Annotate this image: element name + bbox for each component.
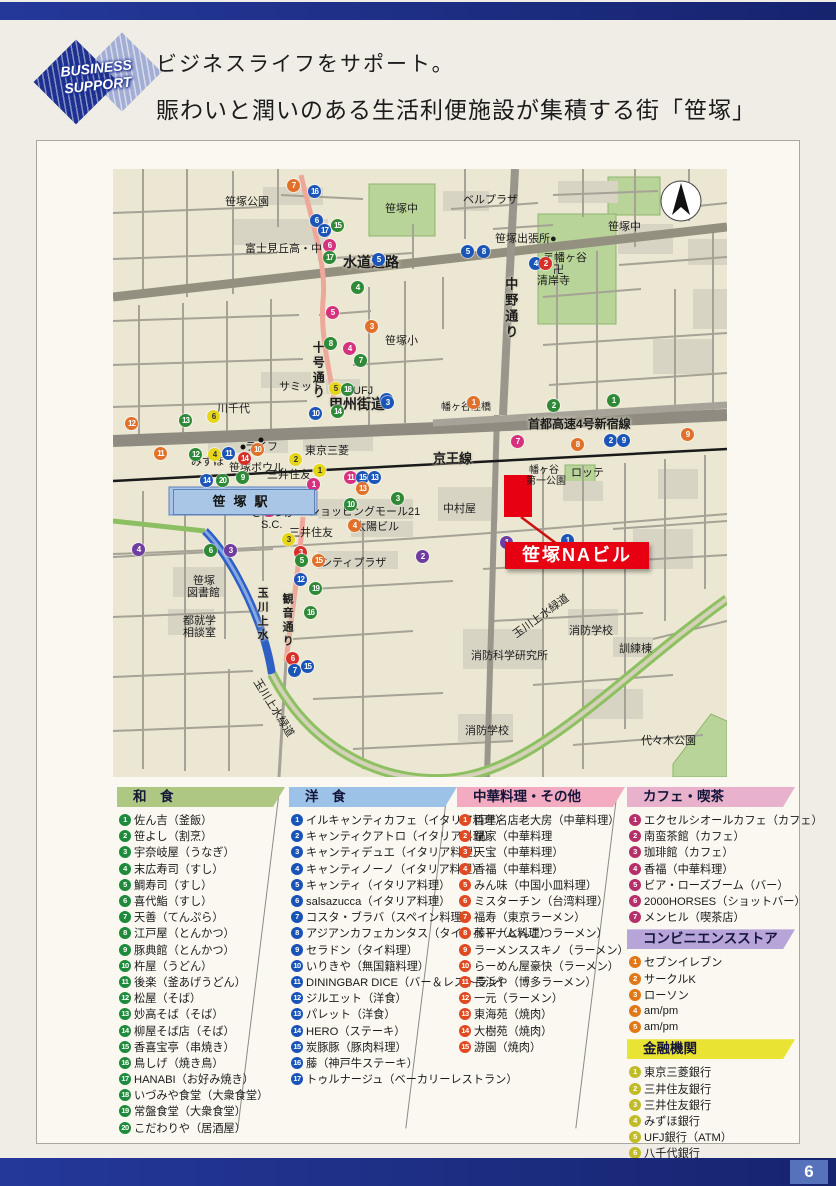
map-marker: 8	[571, 438, 584, 451]
legend-item: 17HANABI（お好み焼き）	[117, 1071, 285, 1087]
map-marker: 20	[216, 474, 229, 487]
item-number-bullet: 14	[119, 1025, 131, 1037]
map-marker: 1	[607, 394, 620, 407]
item-label: UFJ銀行（ATM）	[644, 1129, 732, 1145]
map-marker: 8	[324, 337, 337, 350]
item-number-bullet: 9	[119, 944, 131, 956]
item-label: ローソン	[644, 987, 689, 1003]
map-marker: 12	[189, 448, 202, 461]
legend-item: 1東京三菱銀行	[627, 1064, 795, 1080]
item-label: 三井住友銀行	[644, 1097, 711, 1113]
item-label: 香福（中華料理）	[644, 861, 734, 877]
item-number-bullet: 17	[291, 1073, 303, 1085]
legend-item: 4キャンティノーノ（イタリア料理）	[289, 861, 457, 877]
map-marker: 4	[343, 342, 356, 355]
map-marker: 7	[511, 435, 524, 448]
item-label: 藤平（とんこつラーメン）	[474, 925, 608, 941]
map-label: 図書館	[187, 587, 220, 599]
map-marker: 9	[681, 428, 694, 441]
item-label: セブンイレブン	[644, 954, 722, 970]
item-label: みん味（中国小皿料理）	[474, 877, 597, 893]
legend-section-title: 和 食	[117, 787, 285, 807]
item-number-bullet: 6	[459, 895, 471, 907]
station-label: 笹塚駅	[173, 489, 315, 515]
legend-item: 3ローソン	[627, 987, 795, 1003]
map-label: 笹塚中	[385, 203, 418, 215]
map-marker: 6	[207, 410, 220, 423]
item-number-bullet: 19	[119, 1105, 131, 1117]
item-label: 常盤食堂（大衆食堂）	[134, 1103, 246, 1119]
legend-item: 13東海苑（焼肉）	[457, 1006, 625, 1022]
item-label: 珈琲館（カフェ）	[644, 844, 734, 860]
item-number-bullet: 8	[459, 927, 471, 939]
item-label: 鯛寿司（すし）	[134, 877, 212, 893]
map-label: 訓練棟	[619, 643, 652, 655]
item-number-bullet: 1	[629, 1066, 641, 1078]
item-number-bullet: 3	[629, 1099, 641, 1111]
legend-item: 5鯛寿司（すし）	[117, 877, 285, 893]
item-label: 妙高そば（そば）	[134, 1006, 224, 1022]
legend-section-title: 金融機関	[627, 1039, 795, 1059]
facility-legend: 和 食1佐ん吉（釜飯）2笹よし（割烹）3宇奈岐屋（うなぎ）4末広寿司（すし）5鯛…	[117, 787, 797, 1139]
legend-section-header: 和 食	[117, 787, 285, 807]
map-label: 笹塚	[193, 575, 215, 587]
legend-item: 3天宝（中華料理）	[457, 844, 625, 860]
legend-item: 12ジルエット（洋食）	[289, 990, 457, 1006]
item-number-bullet: 2	[291, 830, 303, 842]
item-label: 末広寿司（すし）	[134, 861, 224, 877]
map-marker: 14	[238, 452, 251, 465]
map-marker: 2	[289, 453, 302, 466]
map-marker: 4	[348, 519, 361, 532]
map-marker: 4	[208, 448, 221, 461]
item-label: 游園（焼肉）	[474, 1039, 541, 1055]
map-marker: 7	[288, 664, 301, 677]
item-label: 藤（神戸牛ステーキ）	[306, 1055, 418, 1071]
map-marker: 9	[236, 471, 249, 484]
item-number-bullet: 2	[459, 830, 471, 842]
item-number-bullet: 4	[629, 1005, 641, 1017]
item-number-bullet: 20	[119, 1122, 131, 1134]
item-number-bullet: 11	[291, 976, 303, 988]
item-number-bullet: 2	[629, 830, 641, 842]
item-number-bullet: 7	[629, 911, 641, 923]
item-label: 長浜や（博多ラーメン）	[474, 974, 597, 990]
legend-item: 7天善（てんぷら）	[117, 909, 285, 925]
map-marker: 5	[326, 306, 339, 319]
legend-item: 14柳屋そば店（そば）	[117, 1022, 285, 1038]
map-marker: 9	[617, 434, 630, 447]
legend-item: 16鳥しげ（焼き鳥）	[117, 1055, 285, 1071]
item-label: コスタ・ブラバ（スペイン料理）	[306, 909, 473, 925]
map-marker: 16	[308, 185, 321, 198]
item-number-bullet: 11	[119, 976, 131, 988]
legend-item: 9セラドン（タイ料理）	[289, 942, 457, 958]
map-marker: 12	[294, 573, 307, 586]
item-label: 三井住友銀行	[644, 1081, 711, 1097]
item-label: 宇奈岐屋（うなぎ）	[134, 844, 235, 860]
map-marker: 16	[304, 606, 317, 619]
legend-item: 10いりきや（無国籍料理）	[289, 958, 457, 974]
page-headline: ビジネスライフをサポート。 賑わいと潤いのある生活利便施設が集積する街「笹塚」	[156, 48, 756, 125]
legend-item: 1百年名店老大房（中華料理）	[457, 812, 625, 828]
map-marker: 13	[179, 414, 192, 427]
legend-item: 1エクセルシオールカフェ（カフェ）	[627, 812, 795, 828]
map-marker: 17	[318, 224, 331, 237]
item-number-bullet: 5	[119, 879, 131, 891]
map-marker: 2	[547, 399, 560, 412]
map-label: 東京三菱	[305, 445, 349, 457]
legend-item: 4みずほ銀行	[627, 1113, 795, 1129]
item-number-bullet: 3	[629, 846, 641, 858]
item-label: トゥルナージュ（ベーカリーレストラン）	[306, 1071, 518, 1087]
item-number-bullet: 13	[291, 1008, 303, 1020]
item-number-bullet: 5	[629, 1021, 641, 1033]
item-label: いづみや食堂（大衆食堂）	[134, 1087, 268, 1103]
map-label: 幡ヶ谷	[529, 465, 559, 476]
map-label: 中野通り	[503, 277, 517, 341]
legend-item: 9ラーメンススキノ（ラーメン）	[457, 942, 625, 958]
legend-item: 4香福（中華料理）	[457, 861, 625, 877]
item-number-bullet: 2	[629, 1083, 641, 1095]
item-number-bullet: 10	[459, 960, 471, 972]
item-number-bullet: 17	[119, 1073, 131, 1085]
bottom-bar: 6	[0, 1158, 836, 1186]
legend-item: 5キャンティ（イタリア料理）	[289, 877, 457, 893]
item-number-bullet: 1	[629, 956, 641, 968]
map-marker: 3	[224, 544, 237, 557]
map-marker: 13	[368, 471, 381, 484]
page-number: 6	[790, 1160, 828, 1184]
legend-item: 5ビア・ローズブーム（バー）	[627, 877, 795, 893]
item-label: パレット（洋食）	[306, 1006, 396, 1022]
legend-item: 3三井住友銀行	[627, 1097, 795, 1113]
map-marker: 18	[341, 383, 354, 396]
legend-section-title: 洋 食	[289, 787, 457, 807]
legend-item: 8アジアンカフェカンタス（タイ、ベトナム料理）	[289, 925, 457, 941]
legend-item: 1イルキャンティカフェ（イタリア料理）	[289, 812, 457, 828]
item-number-bullet: 4	[119, 863, 131, 875]
item-number-bullet: 1	[629, 814, 641, 826]
legend-section-header: 中華料理・その他	[457, 787, 625, 807]
item-label: 炭豚豚（豚肉料理）	[306, 1039, 407, 1055]
map-label: 消防学校	[569, 625, 613, 637]
content-box: 笹塚公園笹塚中ベルプラザ笹塚中笹塚出張所●富士見丘高・中〒幡ヶ谷卍清岸寺水道道路…	[36, 140, 800, 1144]
top-bar	[0, 2, 836, 20]
map-marker: 1	[313, 464, 326, 477]
map-label: ロッテ	[571, 467, 604, 479]
item-number-bullet: 15	[459, 1041, 471, 1053]
legend-item: 6喜代鮨（すし）	[117, 893, 285, 909]
map-marker: 15	[301, 660, 314, 673]
item-number-bullet: 4	[629, 1115, 641, 1127]
legend-item: 6ミスターチン（台湾料理）	[457, 893, 625, 909]
item-label: 佐ん吉（釜飯）	[134, 812, 212, 828]
map-marker: 5	[372, 253, 385, 266]
legend-item: 11後楽（釜あげうどん）	[117, 974, 285, 990]
map-marker: 2	[416, 550, 429, 563]
item-label: メンヒル（喫茶店）	[644, 909, 745, 925]
map-label: 幡ヶ谷陸橋	[441, 402, 491, 413]
item-label: salsazucca（イタリア料理）	[306, 893, 450, 909]
item-label: 後楽（釜あげうどん）	[134, 974, 246, 990]
item-number-bullet: 9	[291, 944, 303, 956]
map-label: 相談室	[183, 627, 216, 639]
legend-section-title: カフェ・喫茶	[627, 787, 795, 807]
item-number-bullet: 6	[629, 895, 641, 907]
map-marker: 3	[391, 492, 404, 505]
legend-item: 2南蛮茶館（カフェ）	[627, 828, 795, 844]
item-number-bullet: 15	[119, 1041, 131, 1053]
item-number-bullet: 13	[459, 1008, 471, 1020]
legend-item: 3宇奈岐屋（うなぎ）	[117, 844, 285, 860]
map-label: 首都高速4号新宿線	[528, 418, 631, 431]
map-label: 笹塚小	[385, 335, 418, 347]
map-label: 消防学校	[465, 725, 509, 737]
item-label: 鳥しげ（焼き鳥）	[134, 1055, 224, 1071]
map-label: 笹塚公園	[225, 196, 269, 208]
item-number-bullet: 16	[119, 1057, 131, 1069]
item-label: 百年名店老大房（中華料理）	[474, 812, 619, 828]
map-marker: 3	[282, 533, 295, 546]
item-number-bullet: 5	[459, 879, 471, 891]
map-label: 清岸寺	[537, 275, 570, 287]
map-label: 代々木公園	[641, 735, 696, 747]
item-label: ビア・ローズブーム（バー）	[644, 877, 789, 893]
map-marker: 13	[356, 482, 369, 495]
map-marker: 3	[381, 396, 394, 409]
legend-item: 12松屋（そば）	[117, 990, 285, 1006]
map-marker: 12	[125, 417, 138, 430]
item-label: 天善（てんぷら）	[134, 909, 224, 925]
item-label: 柳屋そば店（そば）	[134, 1023, 235, 1039]
map-label: 三井住友	[267, 469, 311, 481]
item-label: エクセルシオールカフェ（カフェ）	[644, 812, 823, 828]
legend-item: 14大樹苑（焼肉）	[457, 1022, 625, 1038]
map-marker: 14	[331, 405, 344, 418]
item-label: こだわりや（居酒屋）	[134, 1120, 246, 1136]
map-marker: 8	[477, 245, 490, 258]
map-graphics	[113, 169, 727, 777]
legend-item: 2サークルK	[627, 971, 795, 987]
item-number-bullet: 3	[291, 846, 303, 858]
legend-item: 4香福（中華料理）	[627, 861, 795, 877]
legend-item: 3珈琲館（カフェ）	[627, 844, 795, 860]
headline-line1: ビジネスライフをサポート。	[156, 48, 756, 78]
map-label: シティプラザ	[321, 557, 386, 569]
map-marker: 15	[312, 554, 325, 567]
legend-item: 4am/pm	[627, 1003, 795, 1019]
map-marker: 5	[295, 554, 308, 567]
legend-item: 7メンヒル（喫茶店）	[627, 909, 795, 925]
item-number-bullet: 7	[291, 911, 303, 923]
item-number-bullet: 12	[119, 992, 131, 1004]
legend-item: 7福寿（東京ラーメン）	[457, 909, 625, 925]
item-number-bullet: 11	[459, 976, 471, 988]
item-label: セラドン（タイ料理）	[306, 942, 418, 958]
item-label: HERO（ステーキ）	[306, 1023, 405, 1039]
legend-item: 5UFJ銀行（ATM）	[627, 1129, 795, 1145]
map-marker: 6	[204, 544, 217, 557]
map-label: 笹塚出張所●	[495, 233, 557, 245]
item-number-bullet: 1	[459, 814, 471, 826]
legend-item: 8江戸屋（とんかつ）	[117, 925, 285, 941]
map-marker: 11	[154, 447, 167, 460]
item-number-bullet: 10	[291, 960, 303, 972]
map-label: 中村屋	[443, 503, 476, 515]
map-label: 第一公園	[526, 476, 566, 487]
item-label: 天宝（中華料理）	[474, 844, 564, 860]
map-label: ベルプラザ	[463, 194, 518, 206]
legend-section-header: 金融機関	[627, 1039, 795, 1059]
item-label: ジルエット（洋食）	[306, 990, 407, 1006]
map-label: S.C.	[261, 519, 282, 531]
legend-item: 10杵屋（うどん）	[117, 958, 285, 974]
item-label: みずほ銀行	[644, 1113, 700, 1129]
item-label: サークルK	[644, 971, 696, 987]
item-number-bullet: 7	[459, 911, 471, 923]
item-number-bullet: 1	[291, 814, 303, 826]
map-marker: 4	[132, 543, 145, 556]
na-building-label: 笹塚NAビル	[505, 542, 649, 569]
item-label: ミスターチン（台湾料理）	[474, 893, 608, 909]
item-number-bullet: 15	[291, 1041, 303, 1053]
item-number-bullet: 6	[291, 895, 303, 907]
map-label: 水道道路	[343, 255, 399, 270]
item-number-bullet: 5	[291, 879, 303, 891]
legend-item: 5am/pm	[627, 1019, 795, 1035]
legend-item: 13妙高そば（そば）	[117, 1006, 285, 1022]
map-marker: 6	[286, 652, 299, 665]
map-label: 太陽ビル	[355, 521, 399, 533]
item-label: 松屋（そば）	[134, 990, 201, 1006]
item-label: 2000HORSES（ショットバー）	[644, 893, 806, 909]
map-label: 富士見丘高・中	[245, 243, 322, 255]
item-label: 大樹苑（焼肉）	[474, 1023, 552, 1039]
item-label: キャンティ（イタリア料理）	[306, 877, 450, 893]
area-map: 笹塚公園笹塚中ベルプラザ笹塚中笹塚出張所●富士見丘高・中〒幡ヶ谷卍清岸寺水道道路…	[113, 169, 727, 777]
item-label: 香喜宝亭（串焼き）	[134, 1039, 235, 1055]
item-number-bullet: 4	[629, 863, 641, 875]
map-marker: 10	[344, 498, 357, 511]
legend-item: 2笹よし（割烹）	[117, 828, 285, 844]
item-number-bullet: 3	[119, 846, 131, 858]
item-label: 福寿（東京ラーメン）	[474, 909, 585, 925]
item-label: 東海苑（焼肉）	[474, 1006, 552, 1022]
legend-column: カフェ・喫茶1エクセルシオールカフェ（カフェ）2南蛮茶館（カフェ）3珈琲館（カフ…	[627, 787, 795, 1161]
legend-item: 6salsazucca（イタリア料理）	[289, 893, 457, 909]
legend-item: 11長浜や（博多ラーメン）	[457, 974, 625, 990]
map-label: サミット	[279, 381, 323, 393]
item-label: 東京三菱銀行	[644, 1064, 711, 1080]
item-label: am/pm	[644, 1021, 678, 1033]
map-marker: 3	[365, 320, 378, 333]
item-number-bullet: 12	[459, 992, 471, 1004]
item-label: ラーメンススキノ（ラーメン）	[474, 942, 629, 958]
legend-section-title: 中華料理・その他	[457, 787, 625, 807]
legend-item: 5みん味（中国小皿料理）	[457, 877, 625, 893]
map-label: 京王線	[433, 452, 472, 466]
item-number-bullet: 3	[459, 846, 471, 858]
legend-section-header: カフェ・喫茶	[627, 787, 795, 807]
legend-item: 7コスタ・ブラバ（スペイン料理）	[289, 909, 457, 925]
map-marker: 2	[539, 257, 552, 270]
item-number-bullet: 8	[291, 927, 303, 939]
item-number-bullet: 1	[119, 814, 131, 826]
legend-item: 4末広寿司（すし）	[117, 861, 285, 877]
map-label: 笹塚中	[608, 221, 641, 233]
map-marker: 17	[323, 251, 336, 264]
item-label: HANABI（お好み焼き）	[134, 1071, 254, 1087]
item-number-bullet: 9	[459, 944, 471, 956]
map-label: 都就学	[183, 615, 216, 627]
item-number-bullet: 8	[119, 927, 131, 939]
item-number-bullet: 2	[119, 830, 131, 842]
map-marker: 11	[222, 447, 235, 460]
legend-item: 16藤（神戸牛ステーキ）	[289, 1055, 457, 1071]
legend-item: 2キャンティクアトロ（イタリア料理）	[289, 828, 457, 844]
item-number-bullet: 2	[629, 973, 641, 985]
item-label: 鍋家（中華料理	[474, 828, 552, 844]
item-label: 杵屋（うどん）	[134, 958, 212, 974]
legend-item: 1佐ん吉（釜飯）	[117, 812, 285, 828]
item-label: 江戸屋（とんかつ）	[134, 925, 235, 941]
item-label: am/pm	[644, 1005, 678, 1017]
item-number-bullet: 5	[629, 879, 641, 891]
map-marker: 10	[309, 407, 322, 420]
legend-item: 18いづみや食堂（大衆食堂）	[117, 1087, 285, 1103]
legend-item: 17トゥルナージュ（ベーカリーレストラン）	[289, 1071, 457, 1087]
item-label: 喜代鮨（すし）	[134, 893, 212, 909]
item-label: 一元（ラーメン）	[474, 990, 563, 1006]
headline-line2: 賑わいと潤いのある生活利便施設が集積する街「笹塚」	[156, 91, 756, 125]
legend-item: 20こだわりや（居酒屋）	[117, 1120, 285, 1136]
legend-item: 15香喜宝亭（串焼き）	[117, 1039, 285, 1055]
item-label: 南蛮茶館（カフェ）	[644, 828, 745, 844]
item-number-bullet: 16	[291, 1057, 303, 1069]
item-label: 笹よし（割烹）	[134, 828, 212, 844]
map-label: 三井住友	[289, 527, 333, 539]
legend-section-header: 洋 食	[289, 787, 457, 807]
legend-item: 1セブンイレブン	[627, 954, 795, 970]
legend-item: 2三井住友銀行	[627, 1080, 795, 1096]
map-marker: 19	[309, 582, 322, 595]
map-label: 消防科学研究所	[471, 650, 548, 662]
legend-item: 9豚典館（とんかつ）	[117, 942, 285, 958]
item-number-bullet: 4	[459, 863, 471, 875]
map-marker: 7	[287, 179, 300, 192]
item-number-bullet: 7	[119, 911, 131, 923]
item-number-bullet: 5	[629, 1131, 641, 1143]
legend-item: 13パレット（洋食）	[289, 1006, 457, 1022]
legend-item: 15游園（焼肉）	[457, 1039, 625, 1055]
map-marker: 5	[461, 245, 474, 258]
legend-item: 62000HORSES（ショットバー）	[627, 893, 795, 909]
map-marker: 7	[354, 354, 367, 367]
legend-column: 和 食1佐ん吉（釜飯）2笹よし（割烹）3宇奈岐屋（うなぎ）4末広寿司（すし）5鯛…	[117, 787, 285, 1136]
item-number-bullet: 4	[291, 863, 303, 875]
item-number-bullet: 3	[629, 989, 641, 1001]
map-label: 川千代	[217, 403, 250, 415]
legend-item: 8藤平（とんこつラーメン）	[457, 925, 625, 941]
item-label: 香福（中華料理）	[474, 861, 564, 877]
legend-item: 2鍋家（中華料理	[457, 828, 625, 844]
legend-column: 中華料理・その他1百年名店老大房（中華料理）2鍋家（中華料理3天宝（中華料理）4…	[457, 787, 625, 1055]
map-label: 玉川上水	[256, 587, 268, 643]
map-marker: 15	[331, 219, 344, 232]
map-marker: 2	[604, 434, 617, 447]
legend-item: 11DININGBAR DICE（バー＆レストラン）	[289, 974, 457, 990]
